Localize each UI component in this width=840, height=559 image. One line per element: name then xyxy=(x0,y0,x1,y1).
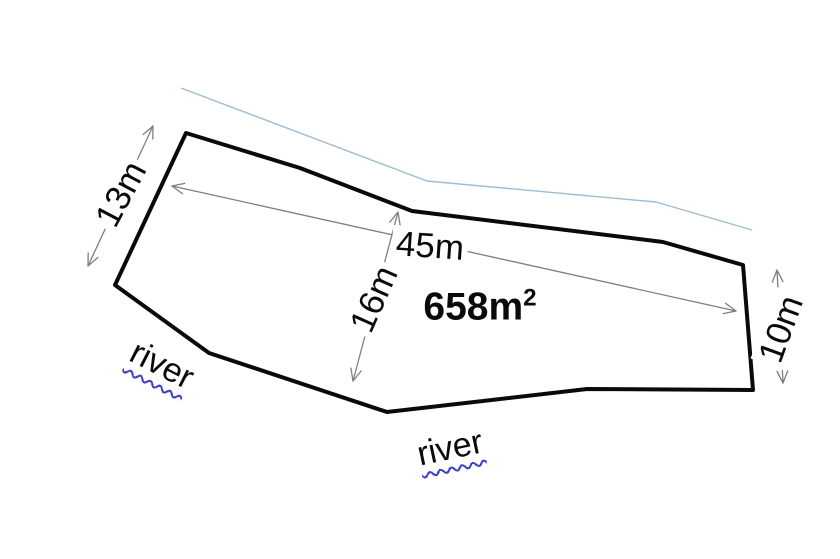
arrowhead-10m xyxy=(783,371,788,383)
arrowhead-45m xyxy=(172,183,185,186)
land-plot-svg xyxy=(0,0,840,559)
area-superscript: 2 xyxy=(523,285,536,312)
arrowhead-16m xyxy=(398,212,400,225)
diagram-canvas: 13m 45m 16m 10m 658m2 river river xyxy=(0,0,840,559)
arrowhead-45m xyxy=(723,311,736,314)
area-value: 658m xyxy=(423,286,523,329)
land-plot-outline xyxy=(115,133,753,412)
arrowhead-16m xyxy=(351,368,353,381)
arrowhead-10m xyxy=(772,270,777,282)
area-label: 658m2 xyxy=(423,288,536,327)
dimension-label-45m: 45m xyxy=(391,225,469,267)
